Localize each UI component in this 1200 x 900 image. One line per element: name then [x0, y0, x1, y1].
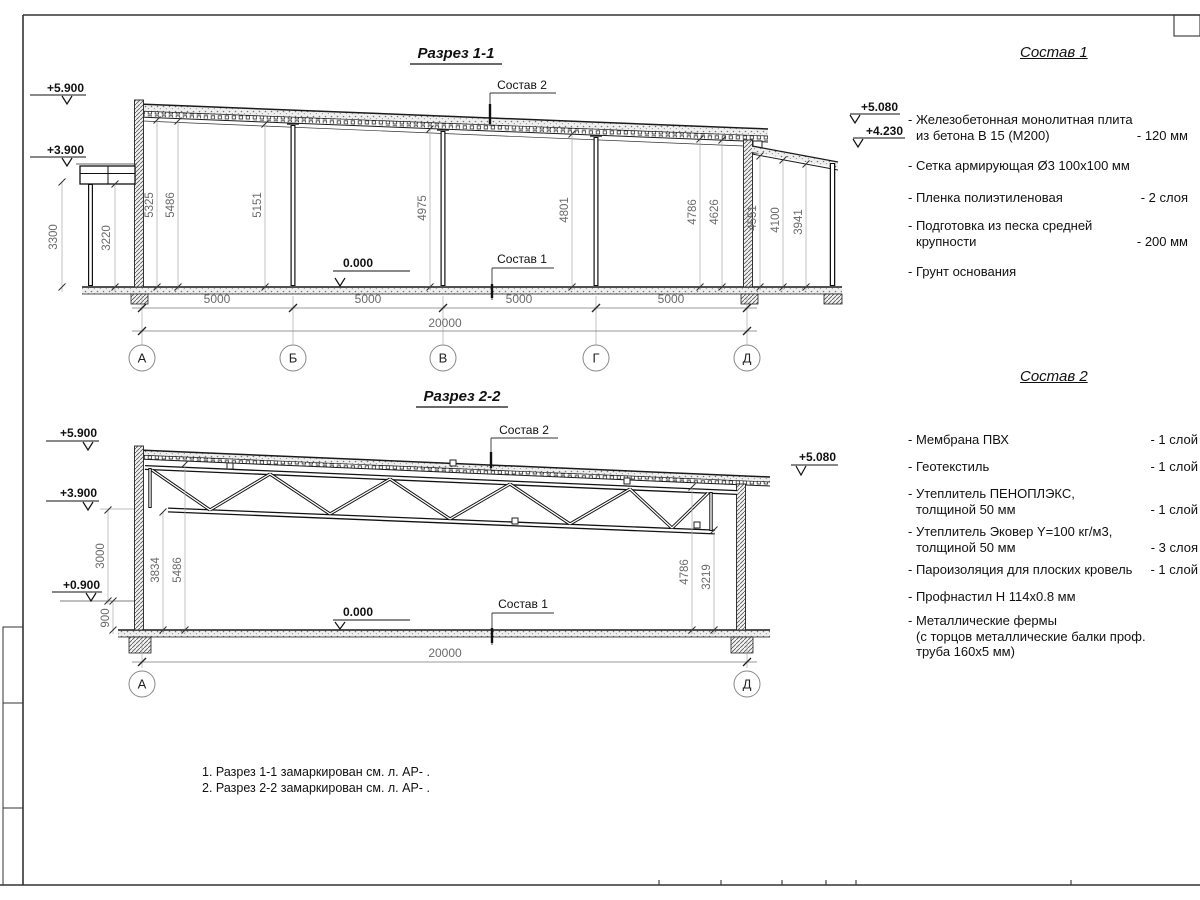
total-dim: 20000 — [428, 646, 462, 660]
list-item: - Утеплитель Эковер Y=100 кг/м3, толщино… — [908, 524, 1198, 555]
foundation — [131, 294, 148, 304]
section-2-2-bottom-dims: 20000 А Д — [129, 640, 760, 697]
item-value: - 3 слоя — [1151, 540, 1198, 556]
item-value: - 1 слой — [1150, 459, 1198, 475]
item-value: - 1 слой — [1150, 432, 1198, 448]
dim-5486: 5486 — [165, 192, 177, 218]
sostav1-label: Состав 1 — [498, 597, 548, 611]
section-2-2-leaders: Состав 2 Состав 1 0.000 — [333, 423, 558, 645]
list-item: - Утеплитель ПЕНОПЛЭКС, толщиной 50 мм -… — [908, 486, 1198, 517]
span-dim: 5000 — [658, 292, 685, 306]
section-2-2-structure — [60, 446, 770, 653]
total-dim: 20000 — [428, 316, 462, 330]
item-text: (с торцов металлические балки проф. — [908, 629, 1198, 645]
span-dim: 5000 — [204, 292, 231, 306]
elev-3900: +3.900 — [60, 486, 97, 500]
dim-3219: 3219 — [701, 564, 713, 590]
margin-stamp-box — [3, 627, 23, 703]
list-item: - Пароизоляция для плоских кровель - 1 с… — [908, 562, 1198, 578]
dim-4786: 4786 — [679, 559, 691, 585]
dim-5486: 5486 — [172, 557, 184, 583]
dim-4551: 4551 — [747, 205, 759, 231]
list-item: - Геотекстиль - 1 слой — [908, 459, 1198, 475]
list-item: - Профнастил Н 114х0.8 мм — [908, 589, 1198, 605]
axis-d: Д — [743, 351, 752, 366]
floor-slab — [82, 287, 842, 294]
canopy — [76, 164, 137, 286]
axis-a: А — [138, 351, 147, 366]
zero-level: 0.000 — [343, 256, 373, 270]
wall-left — [135, 446, 144, 630]
dim-4100: 4100 — [770, 207, 782, 233]
section-2-2-title: Разрез 2-2 — [423, 388, 501, 405]
item-text: труба 160х5 мм) — [908, 644, 1198, 660]
elev-5900: +5.900 — [47, 81, 84, 95]
dim-3000: 3000 — [95, 543, 107, 569]
section-1-1-height-dims: 3300 3220 5325 5486 5151 4975 4801 4786 … — [48, 117, 810, 293]
composition2-list: - Мембрана ПВХ - 1 слой - Геотекстиль - … — [908, 0, 1198, 680]
axis-bubbles: А Д — [129, 671, 760, 697]
note-line: 1. Разрез 1-1 замаркирован см. л. АР- . — [202, 764, 430, 780]
foundation — [129, 637, 151, 653]
zero-level: 0.000 — [343, 605, 373, 619]
elev-0900: +0.900 — [63, 578, 100, 592]
span-dim: 5000 — [355, 292, 382, 306]
foundation — [824, 294, 842, 304]
section-2-2: Разрез 2-2 — [46, 388, 838, 697]
dim-4786: 4786 — [687, 199, 699, 225]
elev-5080: +5.080 — [799, 450, 836, 464]
dim-900: 900 — [100, 608, 112, 627]
dim-3834: 3834 — [150, 557, 162, 583]
elev-5900: +5.900 — [60, 426, 97, 440]
drawing-sheet: Разрез 1-1 — [0, 0, 1200, 900]
wall-right — [737, 484, 746, 630]
notes: 1. Разрез 1-1 замаркирован см. л. АР- . … — [202, 764, 430, 796]
item-value: - 1 слой — [1150, 562, 1198, 578]
margin-stamp-box — [3, 703, 23, 808]
axis-d: Д — [743, 677, 752, 692]
level-arrow — [335, 278, 345, 286]
columns — [287, 124, 602, 286]
dim-5151: 5151 — [252, 192, 264, 218]
dim-4975: 4975 — [417, 195, 429, 221]
axis-bubbles: А Б В Г Д — [129, 345, 760, 371]
item-text: - Профнастил Н 114х0.8 мм — [908, 589, 1198, 605]
span-dim: 5000 — [506, 292, 533, 306]
floor-slab — [118, 630, 770, 637]
axis-a: А — [138, 677, 147, 692]
elev-3900: +3.900 — [47, 143, 84, 157]
note-line: 2. Разрез 2-2 замаркирован см. л. АР- . — [202, 780, 430, 796]
sostav2-label: Состав 2 — [497, 78, 547, 92]
wall-left — [135, 100, 144, 287]
sostav2-label: Состав 2 — [499, 423, 549, 437]
item-text: - Утеплитель Эковер Y=100 кг/м3, — [908, 524, 1198, 540]
margin-stamp-box — [3, 808, 23, 885]
foundation — [741, 294, 758, 304]
dim-5325: 5325 — [144, 192, 156, 218]
list-item: - Металлические фермы (с торцов металлич… — [908, 613, 1198, 660]
list-item: - Мембрана ПВХ - 1 слой — [908, 432, 1198, 448]
item-text: - Металлические фермы — [908, 613, 1198, 629]
sostav1-label: Состав 1 — [497, 252, 547, 266]
elev-4230: +4.230 — [866, 124, 903, 138]
dim-3941: 3941 — [793, 209, 805, 235]
section-1-1-title: Разрез 1-1 — [417, 45, 494, 62]
elev-5080: +5.080 — [861, 100, 898, 114]
dim-4626: 4626 — [709, 199, 721, 225]
level-arrow — [335, 622, 345, 629]
dim-3220: 3220 — [101, 225, 113, 251]
item-text: - Утеплитель ПЕНОПЛЭКС, — [908, 486, 1198, 502]
dim-3300: 3300 — [48, 224, 60, 250]
axis-g: Г — [592, 351, 599, 366]
roof-insulation-layer — [138, 104, 768, 136]
section-1-1-bottom-dims: 5000 5000 5000 5000 20000 А Б В Г Д — [129, 292, 760, 371]
section-1-1: Разрез 1-1 — [30, 45, 905, 371]
axis-v: В — [439, 351, 448, 366]
foundation — [731, 637, 753, 653]
item-value: - 1 слой — [1150, 502, 1198, 518]
axis-b: Б — [289, 351, 298, 366]
dim-4801: 4801 — [559, 197, 571, 223]
section-1-1-structure — [76, 100, 842, 304]
